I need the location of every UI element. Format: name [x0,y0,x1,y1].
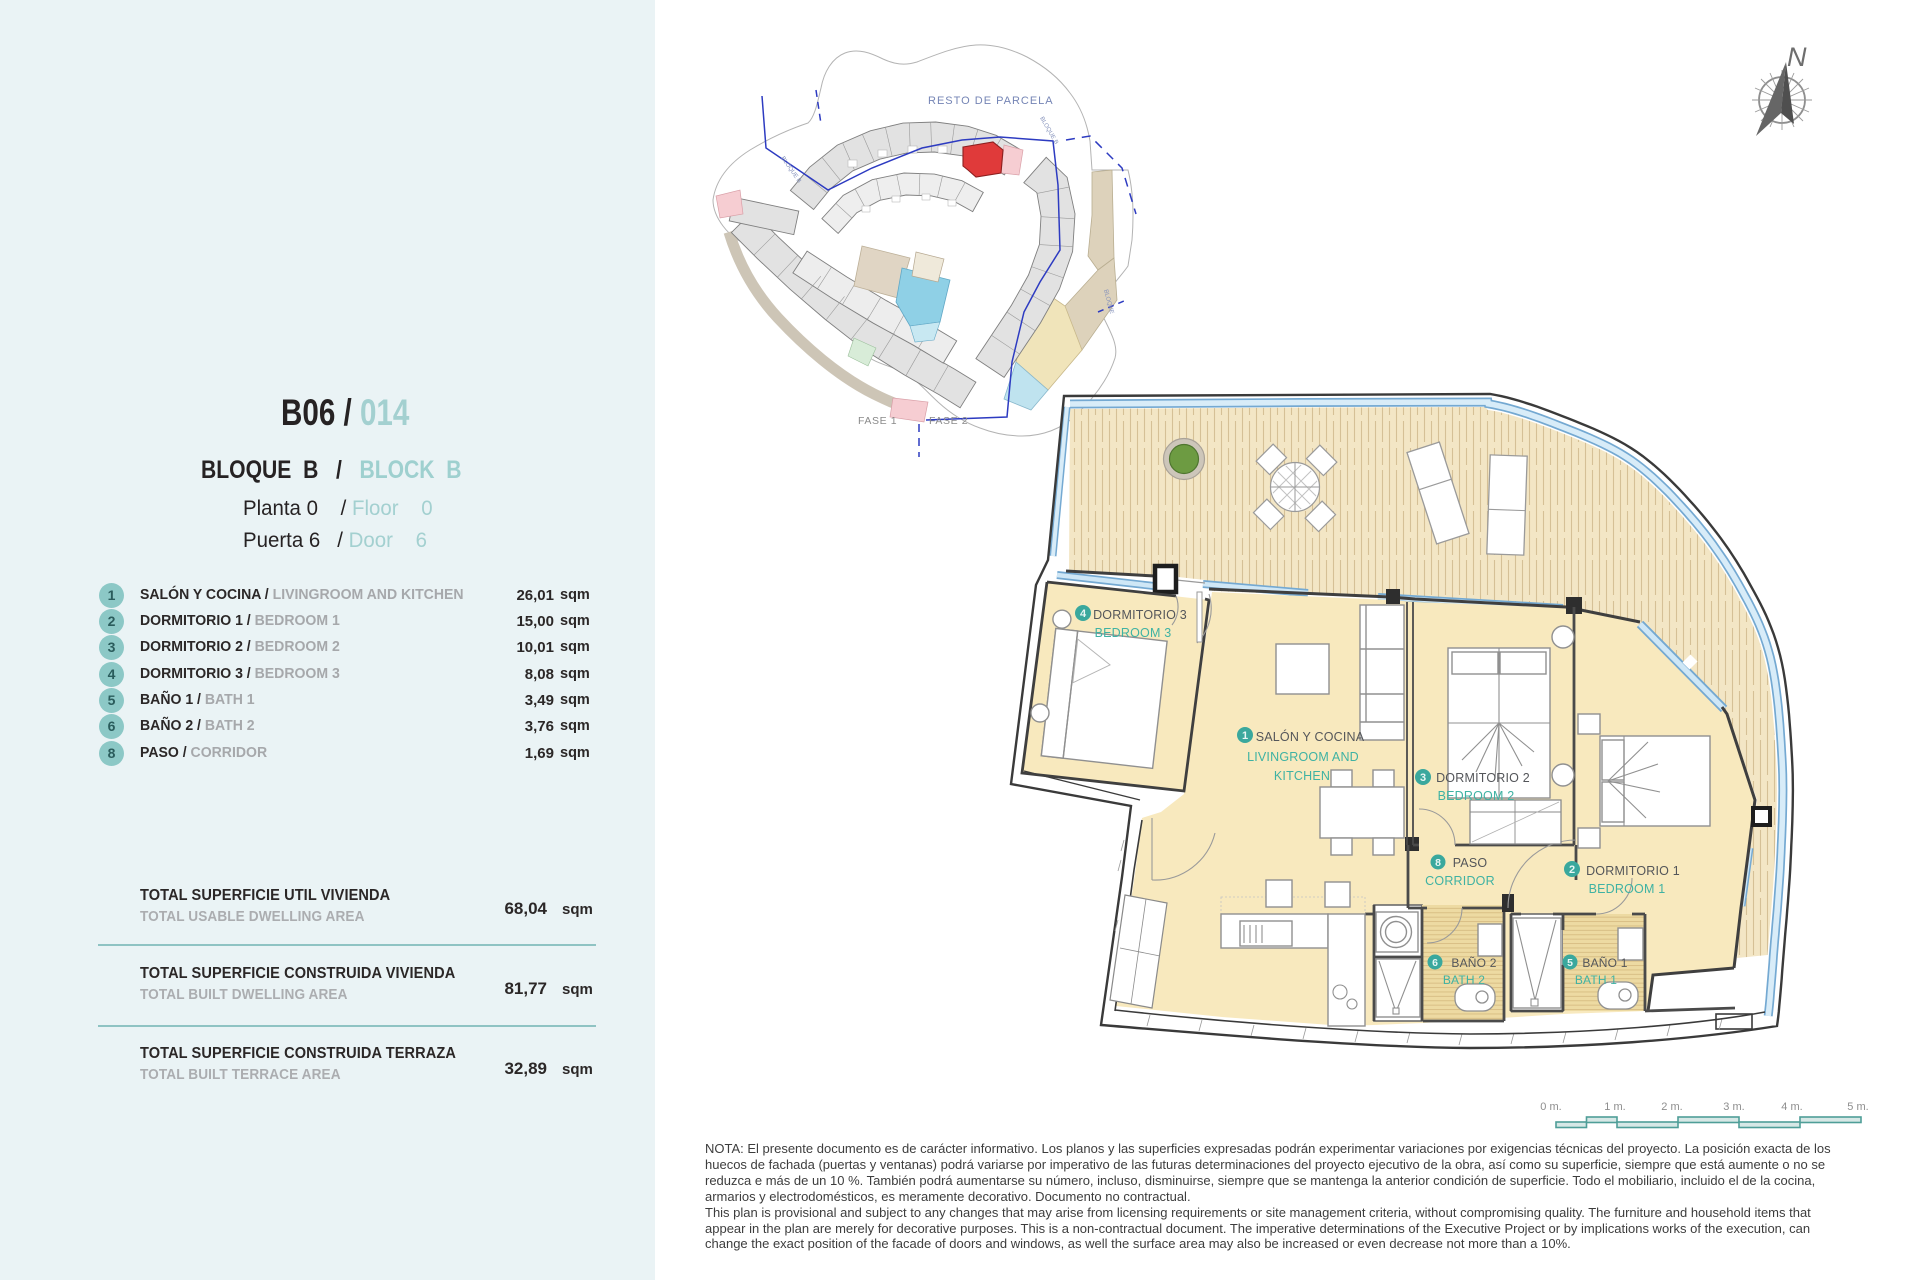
svg-text:PASO: PASO [1453,856,1488,870]
svg-text:BEDROOM 3: BEDROOM 3 [1095,626,1172,640]
svg-text:8: 8 [1435,857,1441,869]
svg-text:BATH 1: BATH 1 [1575,973,1617,987]
svg-text:6: 6 [1432,957,1438,969]
svg-text:FASE 2: FASE 2 [929,415,968,427]
svg-text:4: 4 [1080,608,1087,620]
svg-text:DORMITORIO 1: DORMITORIO 1 [1586,864,1680,878]
svg-text:BAÑO 2: BAÑO 2 [1451,956,1496,970]
svg-text:FASE 1: FASE 1 [858,415,897,427]
svg-text:DORMITORIO 3: DORMITORIO 3 [1093,608,1187,622]
svg-text:N: N [1787,42,1807,72]
svg-text:3 m.: 3 m. [1723,1101,1744,1113]
svg-text:4 m.: 4 m. [1781,1101,1802,1113]
svg-text:SALÓN Y COCINA: SALÓN Y COCINA [1256,729,1365,744]
svg-text:BEDROOM 2: BEDROOM 2 [1438,789,1515,803]
svg-text:2 m.: 2 m. [1661,1101,1682,1113]
svg-text:BAÑO 1: BAÑO 1 [1582,956,1627,970]
svg-text:3: 3 [1420,772,1426,784]
svg-text:BEDROOM 1: BEDROOM 1 [1589,882,1666,896]
svg-text:LIVINGROOM AND: LIVINGROOM AND [1247,750,1359,764]
svg-text:5 m.: 5 m. [1847,1101,1868,1113]
svg-text:CORRIDOR: CORRIDOR [1425,874,1495,888]
svg-text:BATH 2: BATH 2 [1443,973,1485,987]
svg-text:0 m.: 0 m. [1540,1101,1561,1113]
svg-text:1 m.: 1 m. [1604,1101,1625,1113]
svg-text:2: 2 [1569,864,1575,876]
svg-text:KITCHEN: KITCHEN [1274,769,1330,783]
svg-text:1: 1 [1242,730,1248,742]
svg-text:DORMITORIO 2: DORMITORIO 2 [1436,771,1530,785]
svg-text:RESTO DE PARCELA: RESTO DE PARCELA [928,95,1054,107]
svg-text:5: 5 [1567,957,1573,969]
